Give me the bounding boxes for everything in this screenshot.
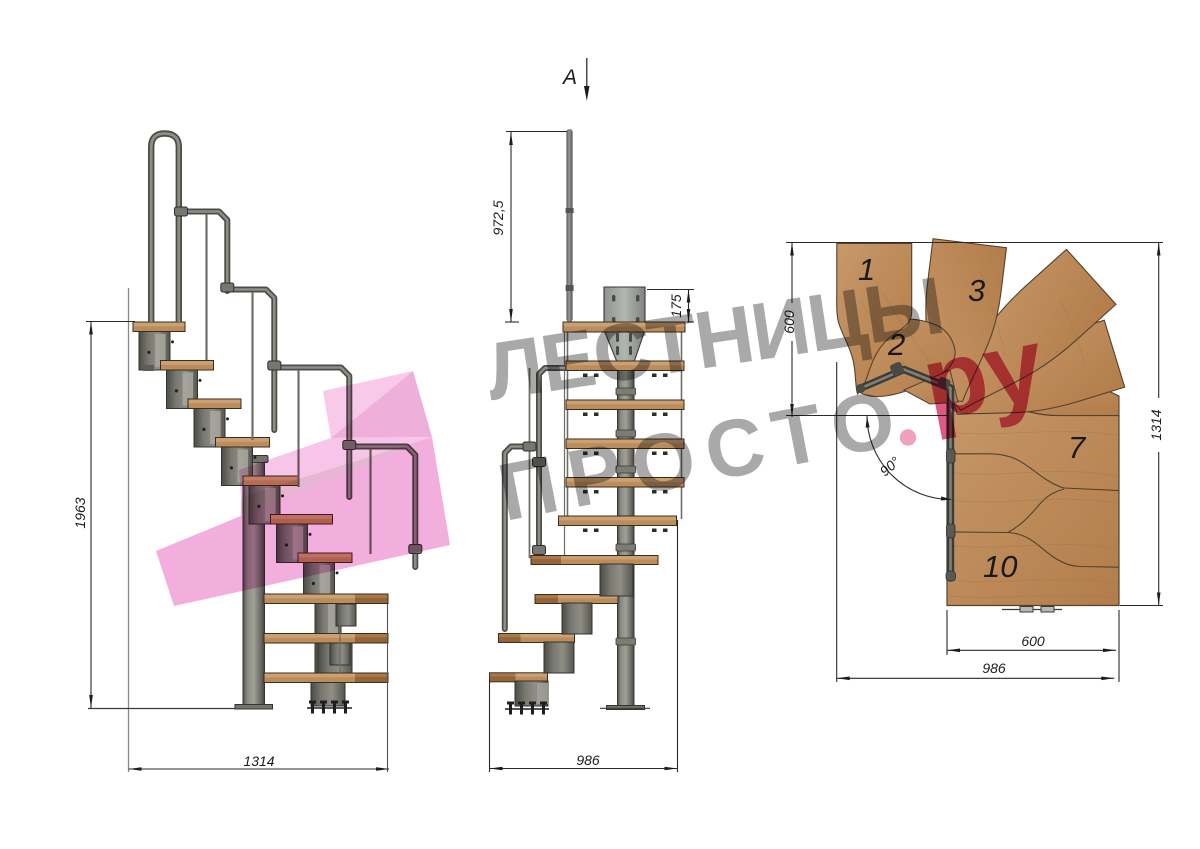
svg-text:1314: 1314 [243, 753, 274, 769]
svg-text:3: 3 [968, 273, 985, 308]
svg-text:1314: 1314 [1148, 409, 1164, 440]
svg-text:7: 7 [1068, 430, 1087, 465]
svg-text:10: 10 [983, 549, 1017, 584]
svg-text:A: A [561, 66, 577, 89]
svg-text:986: 986 [982, 660, 1006, 676]
svg-text:ру: ру [913, 306, 1053, 443]
svg-text:986: 986 [576, 752, 600, 768]
svg-text:600: 600 [1021, 633, 1045, 649]
svg-text:972,5: 972,5 [490, 200, 506, 235]
svg-text:1963: 1963 [72, 497, 88, 528]
